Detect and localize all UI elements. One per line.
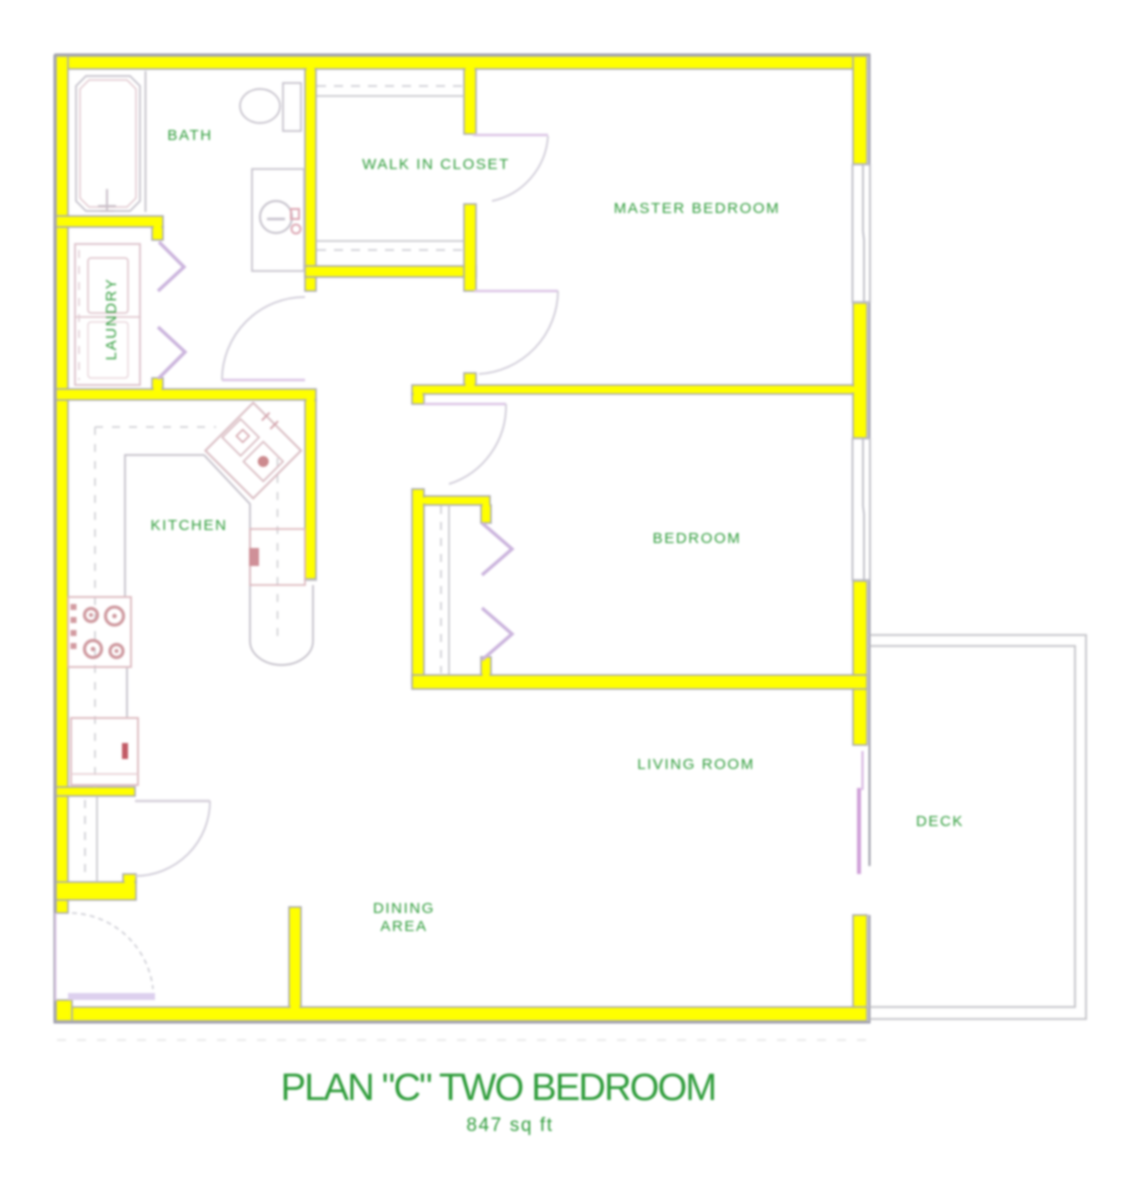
svg-text:BEDROOM: BEDROOM (653, 530, 742, 547)
svg-text:PLAN "C" TWO BEDROOM: PLAN "C" TWO BEDROOM (281, 1067, 716, 1109)
svg-text:KITCHEN: KITCHEN (150, 517, 227, 534)
svg-text:BATH: BATH (167, 127, 212, 144)
svg-text:LIVING ROOM: LIVING ROOM (637, 756, 755, 773)
svg-text:WALK IN CLOSET: WALK IN CLOSET (362, 156, 510, 173)
svg-text:LAUNDRY: LAUNDRY (103, 278, 120, 361)
svg-text:DECK: DECK (916, 813, 964, 830)
svg-text:DINING: DINING (373, 900, 435, 917)
svg-text:MASTER BEDROOM: MASTER BEDROOM (614, 200, 781, 217)
svg-text:847 sq ft: 847 sq ft (466, 1115, 553, 1136)
svg-text:AREA: AREA (380, 918, 427, 935)
